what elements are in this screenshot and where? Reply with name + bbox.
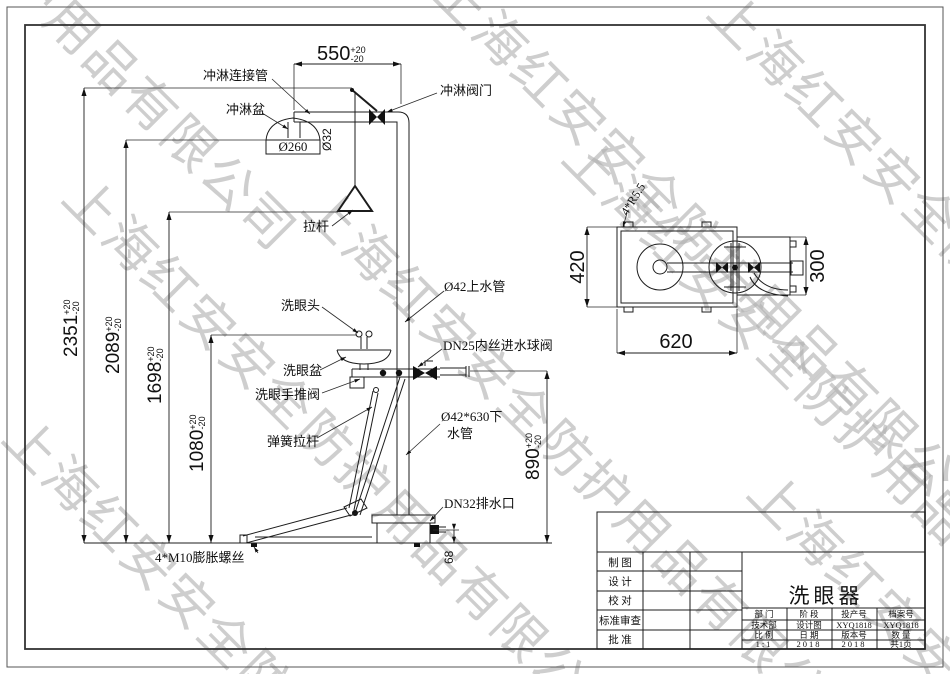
dim-260: Ø260 xyxy=(279,139,308,154)
label-push-valve: 洗眼手推阀 xyxy=(255,387,320,402)
tb-row-approve: 批 准 xyxy=(608,633,632,646)
dim-1080: 1080+20-20 xyxy=(187,414,208,472)
dim-1698: 1698+20-20 xyxy=(145,346,166,404)
tb-h-dept: 部 门 xyxy=(754,609,773,619)
label-shower-bowl: 冲淋盆 xyxy=(226,102,265,117)
drain-outlet xyxy=(430,525,439,534)
shower-valve-shape xyxy=(369,109,377,125)
label-anchor-bolts: 4*M10膨胀螺丝 xyxy=(155,550,245,565)
tb-row-draw: 制 图 xyxy=(608,556,632,569)
tb-row-design: 设 计 xyxy=(608,575,632,588)
dim-300: 300 xyxy=(807,249,829,282)
tb-v-scale: 1:1 xyxy=(756,639,773,649)
shower-bowl-shape xyxy=(266,118,320,140)
label-pull-rod: 拉杆 xyxy=(303,219,329,234)
label-eyewash-bowl: 洗眼盆 xyxy=(283,363,322,378)
front-view xyxy=(84,88,552,547)
dim-620: 620 xyxy=(659,331,692,353)
tb-v-pages: 共1页 xyxy=(890,639,911,649)
watermark-text: 上海红安安全防护用品有限公司 xyxy=(0,0,306,263)
drawing-title: 洗眼器 xyxy=(789,584,864,608)
cad-drawing: 上海红安安全防护用品有限公司 上海红安安全防护用品有限公司 上海红安安全防护用品… xyxy=(0,0,950,674)
dim-2351: 2351+20-20 xyxy=(61,299,82,357)
eyewash-bowl-shape xyxy=(337,350,391,364)
dim-420: 420 xyxy=(567,250,589,283)
eyewash-nozzle xyxy=(366,331,372,337)
label-riser-pipe: Ø42上水管 xyxy=(444,279,505,294)
dim-32: Ø32 xyxy=(320,128,334,151)
dim-550: 550+20-20 xyxy=(317,43,366,65)
dim-68: 68 xyxy=(442,550,456,564)
tb-row-check: 校 对 xyxy=(608,594,632,607)
tb-h-fileno: 档案号 xyxy=(888,609,914,619)
tb-v-fileno: XYQ1818 xyxy=(883,620,918,630)
anchor-bolt xyxy=(414,543,420,547)
watermark-layer: 上海红安安全防护用品有限公司 上海红安安全防护用品有限公司 上海红安安全防护用品… xyxy=(0,0,950,674)
label-spring-rod: 弹簧拉杆 xyxy=(267,434,319,449)
drawing-sheet: 上海红安安全防护用品有限公司 上海红安安全防护用品有限公司 上海红安安全防护用品… xyxy=(0,0,950,674)
tb-v-stage: 设计图 xyxy=(796,620,822,630)
label-drain: DN32排水口 xyxy=(444,496,515,511)
label-shower-pipe: 冲淋连接管 xyxy=(203,68,268,83)
label-inlet-valve: DN25内丝进水球阀 xyxy=(443,338,553,353)
tb-h-stage: 阶 段 xyxy=(799,609,819,619)
tb-v-version: 2018 xyxy=(842,639,867,649)
tb-v-prodno: XYQ1818 xyxy=(836,620,871,630)
tb-v-dept: 技术部 xyxy=(751,620,777,630)
tb-v-date: 2018 xyxy=(797,639,822,649)
label-shower-valve: 冲淋阀门 xyxy=(440,83,492,98)
label-down-pipe-2: 水管 xyxy=(447,426,473,441)
tb-h-prodno: 投产号 xyxy=(841,609,867,619)
inlet-ball-valve xyxy=(413,366,425,380)
dim-2089: 2089+20-20 xyxy=(103,316,124,374)
label-down-pipe: Ø42*630下 xyxy=(441,409,502,424)
label-eyewash-head: 洗眼头 xyxy=(281,298,320,313)
anchor-bolt xyxy=(251,543,257,547)
dim-890: 890+20-20 xyxy=(523,433,544,480)
tb-row-std-review: 标准审查 xyxy=(599,614,641,627)
